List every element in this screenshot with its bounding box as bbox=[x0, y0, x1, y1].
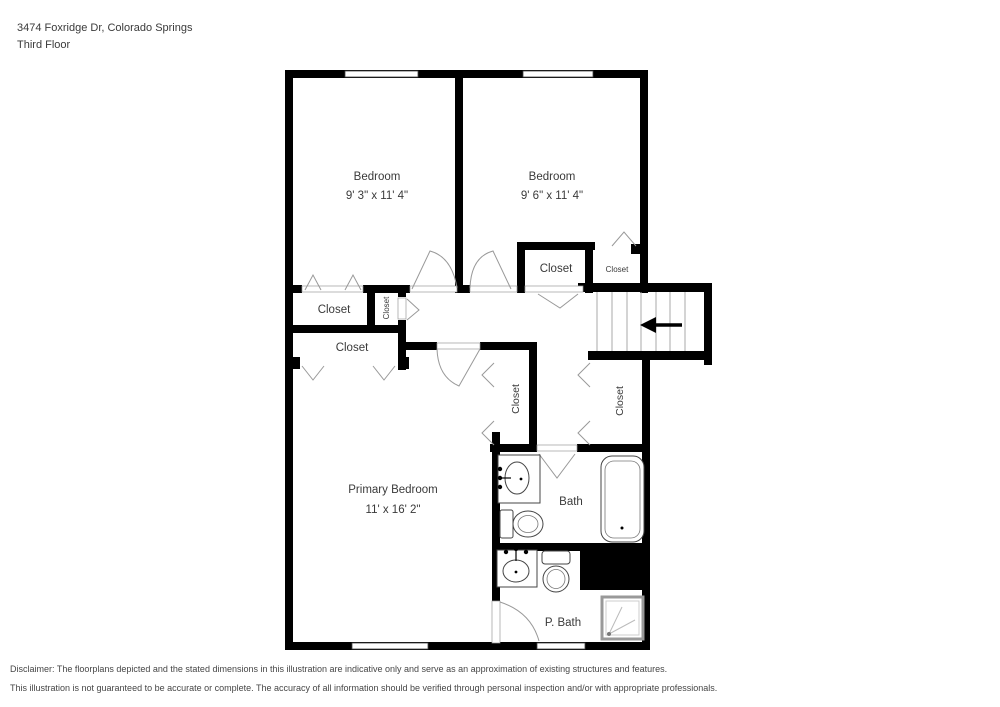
door-arc bbox=[470, 251, 511, 289]
door-threshold bbox=[537, 445, 577, 451]
floor-plan-drawing: Bedroom 9' 3" x 11' 4" Bedroom 9' 6" x 1… bbox=[0, 0, 1000, 707]
door-threshold bbox=[398, 298, 406, 319]
wall bbox=[398, 285, 406, 297]
door-threshold bbox=[302, 286, 363, 292]
closet-opening-mark bbox=[407, 299, 419, 320]
closet-label-vertical: Closet bbox=[382, 296, 391, 319]
wall bbox=[517, 242, 525, 293]
toilet-bowl bbox=[513, 511, 543, 537]
primary-bedroom-label: Primary Bedroom bbox=[348, 484, 437, 496]
window bbox=[345, 71, 418, 77]
faucet-spout bbox=[498, 476, 502, 480]
closet-label-vertical: Closet bbox=[510, 384, 522, 414]
window bbox=[352, 643, 428, 649]
closet-label-vertical: Closet bbox=[614, 386, 626, 416]
closet-opening-mark bbox=[578, 363, 590, 387]
primary-bath-label: P. Bath bbox=[545, 617, 581, 629]
stairs-direction-arrow-head bbox=[640, 317, 656, 333]
faucet-spout bbox=[514, 547, 518, 551]
wall bbox=[577, 444, 650, 452]
utility-chase bbox=[580, 548, 645, 590]
faucet-handle bbox=[504, 550, 508, 554]
primary-bedroom-dims: 11' x 16' 2" bbox=[366, 504, 421, 516]
disclaimer: Disclaimer: The floorplans depicted and … bbox=[10, 660, 717, 697]
door-arc bbox=[500, 602, 539, 641]
staircase bbox=[597, 292, 685, 351]
wall bbox=[367, 285, 375, 333]
bedroom-right-label: Bedroom bbox=[529, 171, 576, 183]
sink-drain bbox=[520, 478, 523, 481]
window bbox=[523, 71, 593, 77]
door-openings bbox=[302, 286, 583, 643]
door-jamb bbox=[289, 357, 300, 369]
wall bbox=[640, 70, 648, 293]
closet-label: Closet bbox=[318, 304, 351, 316]
wall bbox=[285, 325, 406, 333]
faucet-handle bbox=[498, 467, 502, 471]
closet-opening-mark bbox=[578, 421, 590, 445]
wall bbox=[285, 70, 648, 78]
wall bbox=[285, 642, 650, 650]
faucet-handle bbox=[498, 485, 502, 489]
wall bbox=[406, 342, 437, 350]
window bbox=[537, 643, 585, 649]
wall bbox=[588, 351, 712, 360]
door-jamb bbox=[398, 357, 409, 369]
bathtub-drain bbox=[621, 527, 624, 530]
wall bbox=[457, 285, 470, 293]
bath-label: Bath bbox=[559, 496, 583, 508]
door-arc bbox=[412, 251, 457, 289]
wall bbox=[578, 283, 712, 292]
bedroom-left-dims: 9' 3" x 11' 4" bbox=[346, 190, 408, 202]
bifold-door-mark bbox=[302, 366, 324, 380]
wall bbox=[285, 285, 302, 293]
closet-opening-mark bbox=[482, 363, 494, 387]
bath-door-mark bbox=[539, 454, 575, 478]
toilet-tank bbox=[500, 510, 513, 538]
wall bbox=[585, 242, 593, 293]
door-threshold bbox=[410, 286, 457, 292]
bedroom-left-label: Bedroom bbox=[354, 171, 401, 183]
wall bbox=[517, 242, 595, 250]
wall bbox=[529, 342, 537, 452]
door-threshold bbox=[492, 601, 500, 643]
closet-label: Closet bbox=[336, 342, 369, 354]
bedroom-right-dims: 9' 6" x 11' 4" bbox=[521, 190, 583, 202]
wall bbox=[455, 70, 463, 293]
door-arc bbox=[437, 349, 480, 386]
wall bbox=[480, 342, 537, 350]
bifold-door-mark bbox=[373, 366, 395, 380]
disclaimer-line-2: This illustration is not guaranteed to b… bbox=[10, 679, 717, 698]
closet-door-mark bbox=[612, 232, 636, 246]
closet-label: Closet bbox=[540, 263, 573, 275]
closet-label-small: Closet bbox=[606, 265, 629, 274]
toilet-tank bbox=[542, 551, 570, 564]
sink-drain bbox=[515, 571, 518, 574]
faucet-handle bbox=[524, 550, 528, 554]
closet-door-mark bbox=[538, 294, 578, 308]
door-threshold bbox=[525, 286, 583, 292]
disclaimer-line-1: Disclaimer: The floorplans depicted and … bbox=[10, 660, 717, 679]
floorplan-page: 3474 Foxridge Dr, Colorado Springs Third… bbox=[0, 0, 1000, 707]
shower-drain bbox=[607, 632, 611, 636]
door-threshold bbox=[437, 343, 480, 349]
